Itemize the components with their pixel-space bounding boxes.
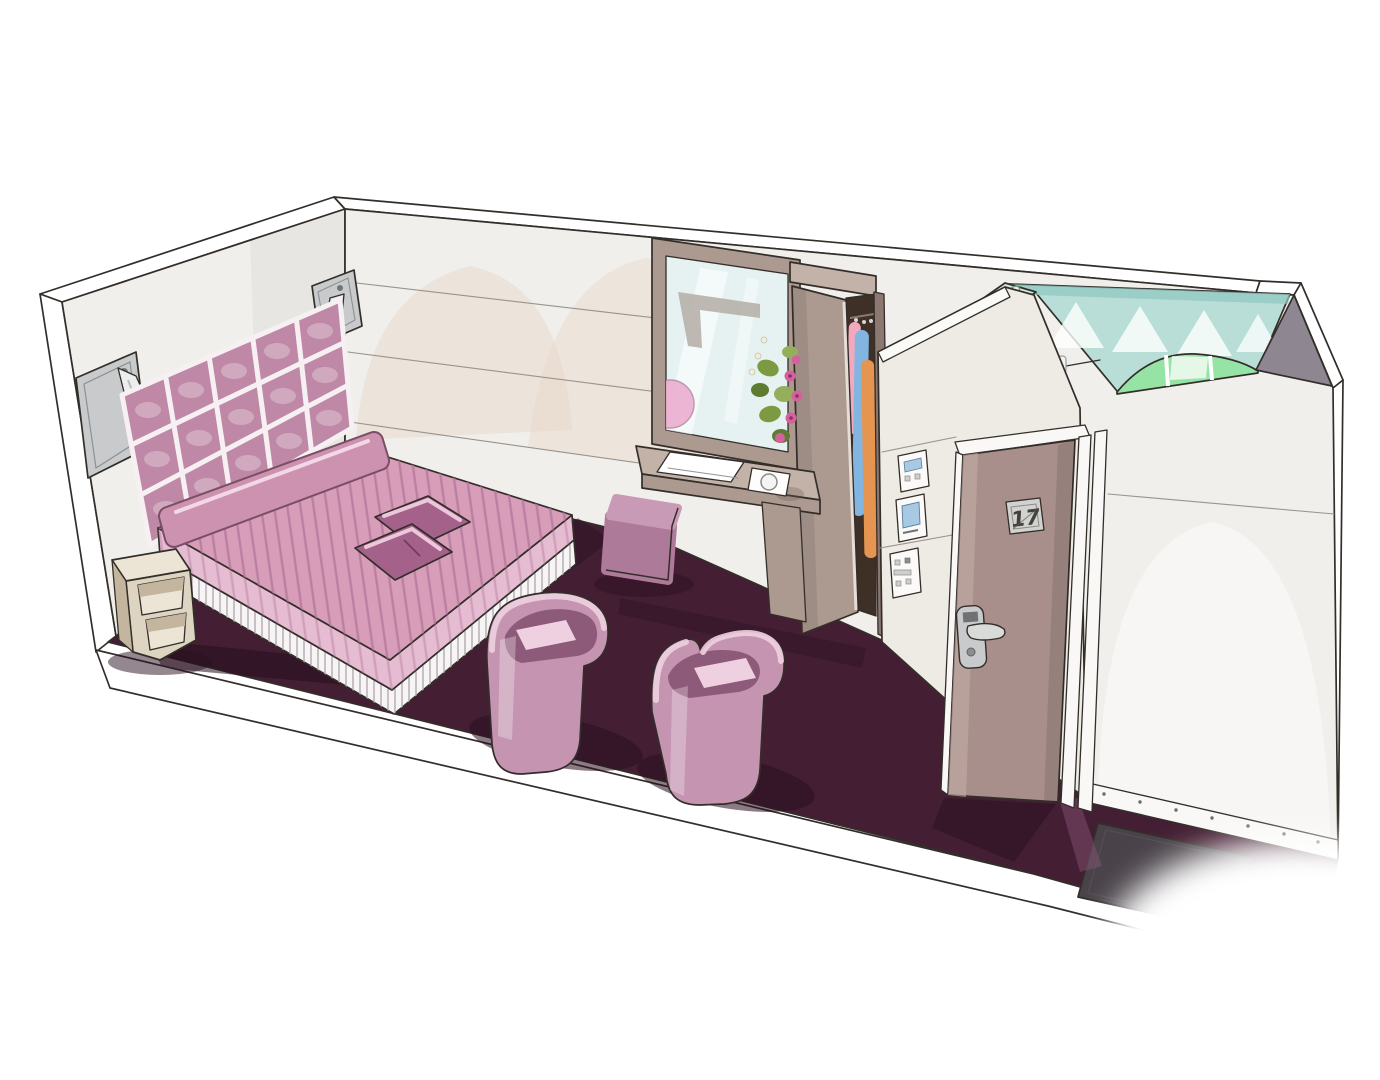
arch-mullion-2 [1210, 356, 1212, 380]
control-dial [761, 474, 777, 490]
thumb-turn[interactable] [967, 648, 975, 656]
entry-door: 17 [932, 425, 1107, 872]
switch-button[interactable] [905, 476, 910, 481]
card-reader-slot[interactable] [963, 611, 979, 622]
inserted-keycard[interactable] [902, 502, 920, 528]
arch-bright-pane [1170, 356, 1208, 380]
switch-button[interactable] [895, 560, 900, 565]
hotel-room-sketch: 17 [0, 0, 1380, 1080]
keycard-holder[interactable] [896, 494, 927, 542]
wardrobe [790, 262, 890, 640]
lamp-pivot [337, 285, 343, 291]
switch-button[interactable] [896, 581, 901, 586]
hanger-hook [869, 319, 873, 323]
hanger-hook [862, 320, 866, 324]
switch-rocker[interactable] [894, 570, 911, 575]
sketch-canvas: 17 [0, 0, 1380, 1080]
arch-mullion-1 [1166, 355, 1168, 386]
lever-handle[interactable] [967, 624, 1005, 640]
room-number-plate: 17 [1006, 498, 1044, 534]
switch-panel-bottom[interactable] [890, 548, 921, 598]
switch-button[interactable] [905, 558, 910, 563]
hanger-hook [854, 318, 858, 322]
right-edge-outer-line [1338, 380, 1343, 858]
switch-button[interactable] [906, 579, 911, 584]
switch-panel-top[interactable] [898, 450, 929, 492]
switch-button[interactable] [915, 474, 920, 479]
